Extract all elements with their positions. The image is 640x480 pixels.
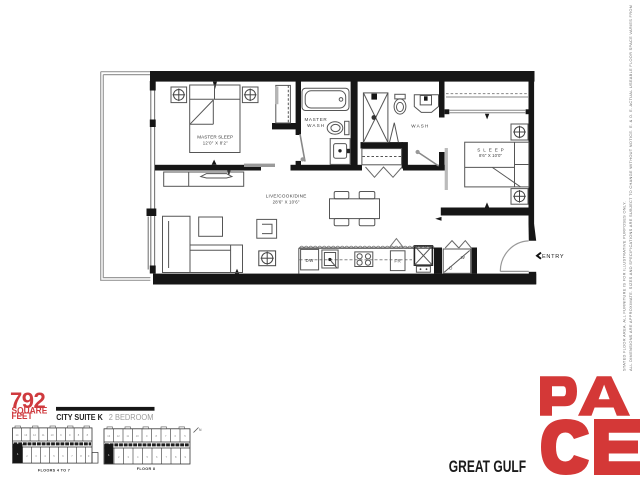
svg-text:WASH: WASH — [307, 123, 324, 128]
svg-text:FR: FR — [394, 259, 401, 264]
svg-text:28'6" X 10'6": 28'6" X 10'6" — [273, 199, 300, 204]
svg-text:MASTER: MASTER — [305, 117, 328, 122]
svg-text:8'6" X 10'0": 8'6" X 10'0" — [479, 153, 502, 158]
svg-text:2 BEDROOM: 2 BEDROOM — [109, 412, 154, 422]
svg-text:STATED FLOOR AREA. ALL FURNITU: STATED FLOOR AREA. ALL FURNITURE IS FOR … — [622, 201, 627, 371]
svg-text:CITY SUITE K: CITY SUITE K — [56, 412, 103, 422]
svg-text:12'0" X 8'2": 12'0" X 8'2" — [203, 140, 228, 145]
svg-text:LIVE/COOK/DINE: LIVE/COOK/DINE — [266, 193, 307, 198]
svg-text:DW: DW — [306, 258, 315, 263]
svg-text:WASH: WASH — [411, 124, 428, 129]
svg-text:FLOORS 4 TO 7: FLOORS 4 TO 7 — [38, 469, 70, 473]
svg-text:FEET: FEET — [12, 410, 33, 421]
svg-text:MASTER SLEEP: MASTER SLEEP — [197, 134, 233, 139]
svg-text:ALL DIMENSIONS ARE APPROXIMATE: ALL DIMENSIONS ARE APPROXIMATE. SIZES AN… — [628, 5, 633, 371]
svg-text:FLOOR 8: FLOOR 8 — [137, 467, 156, 471]
svg-text:D: D — [449, 265, 452, 270]
svg-text:GREAT GULF: GREAT GULF — [449, 457, 526, 476]
svg-text:ENTRY: ENTRY — [542, 254, 564, 260]
